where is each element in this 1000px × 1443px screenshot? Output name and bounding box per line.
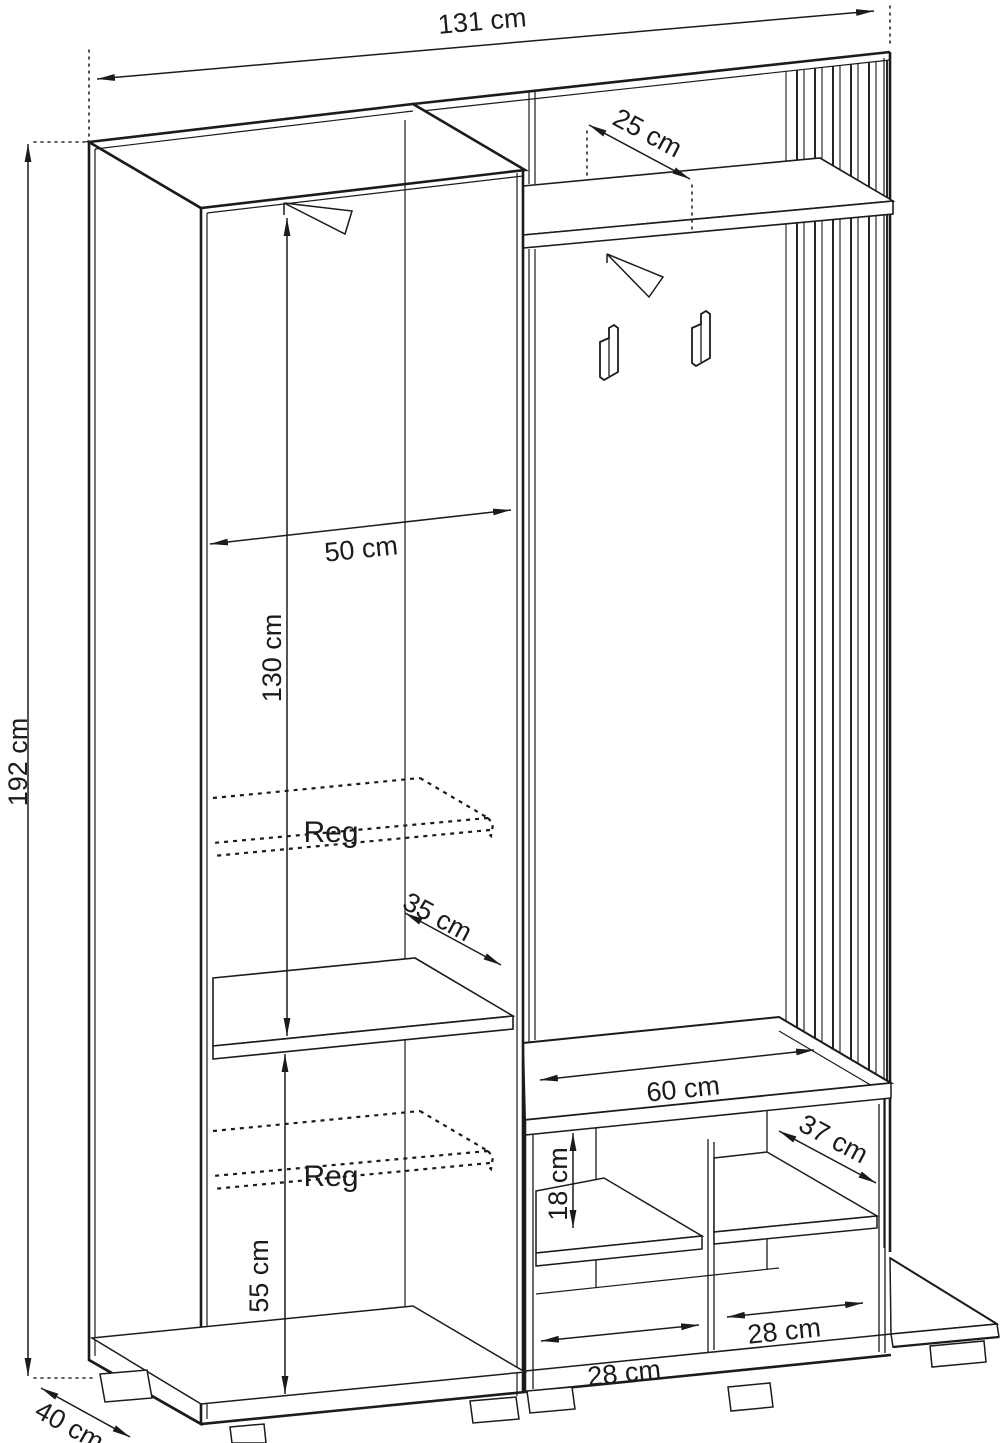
base-plate (890, 1258, 999, 1347)
coat-hook (600, 325, 618, 380)
cabinet-left-side-face (89, 142, 201, 1424)
foot (930, 1341, 986, 1367)
dim-bench-right-compartment-label: 28 cm (746, 1312, 822, 1350)
dim-total-width-label: 131 cm (437, 2, 528, 40)
dim-bench-left-compartment-label: 28 cm (586, 1354, 662, 1392)
coat-hooks (600, 311, 710, 380)
dim-interior-width-label: 50 cm (323, 530, 399, 568)
adjustable-shelf-upper-label: Reg (303, 816, 358, 849)
bench-floor-back-edge (536, 1268, 779, 1294)
hanger-shelf (523, 158, 893, 297)
diagram-canvas: 131 cm 25 cm 50 cm 130 cm Reg 35 cm 192 … (0, 0, 1000, 1443)
cabinet-rail-bracket (284, 203, 352, 234)
dim-hanging-height-label: 130 cm (257, 614, 287, 703)
foot (470, 1397, 519, 1423)
wardrobe-dimension-diagram: 131 cm 25 cm 50 cm 130 cm Reg 35 cm 192 … (0, 0, 1000, 1443)
dim-lower-section-height-label: 55 cm (244, 1239, 274, 1313)
foot (230, 1424, 266, 1443)
bench-bottom-edge (525, 1355, 891, 1392)
base-top-face (890, 1258, 997, 1334)
dim-total-height-label: 192 cm (3, 718, 33, 807)
hanger-rail-bracket (607, 254, 663, 297)
dim-line-bench-left-compartment (541, 1325, 699, 1341)
foot (728, 1383, 773, 1411)
foot (527, 1387, 575, 1413)
tall-cabinet (89, 104, 525, 1424)
coat-hook (692, 311, 710, 366)
dim-bench-shelf-spacing-label: 18 cm (543, 1147, 573, 1221)
dim-middle-shelf-depth-label: 35 cm (398, 886, 477, 947)
dim-top-shelf-depth-label: 25 cm (608, 102, 687, 163)
foot (100, 1370, 152, 1402)
adjustable-shelf-lower-label: Reg (303, 1160, 358, 1193)
